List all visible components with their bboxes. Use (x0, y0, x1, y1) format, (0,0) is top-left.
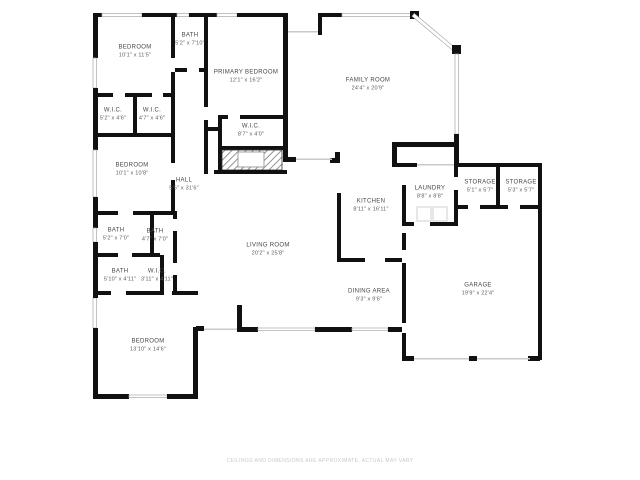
room-dimensions: 9'3" x 9'6" (348, 296, 390, 303)
room-dimensions: 5'1" x 5'7" (464, 187, 495, 194)
room-name: STORAGE (505, 180, 536, 188)
room-label-dining-area: DINING AREA9'3" x 9'6" (348, 289, 390, 304)
room-dimensions: 13'10" x 14'6" (130, 346, 166, 353)
room-name: BATH (175, 33, 205, 41)
room-name: LAUNDRY (415, 186, 446, 194)
room-label-living-room: LIVING ROOM20'2" x 25'8" (246, 243, 289, 258)
room-name: W.I.C. (139, 108, 165, 116)
room-label-bath: BATH5'10" x 4'11" (104, 269, 136, 284)
room-label-bedroom: BEDROOM10'1" x 10'8" (115, 163, 148, 178)
room-name: LIVING ROOM (246, 243, 289, 251)
room-label-bath: BATH5'2" x 7'10" (175, 33, 205, 48)
room-name: BATH (142, 229, 168, 237)
room-label-bath: BATH4'7" x 7'0" (142, 229, 168, 244)
floor-plan-canvas: BEDROOM10'1" x 11'5"BATH5'2" x 7'10"PRIM… (0, 0, 640, 480)
room-label-storage: STORAGE5'1" x 5'7" (464, 180, 495, 195)
room-name: KITCHEN (353, 199, 388, 207)
room-name: BEDROOM (115, 163, 148, 171)
room-dimensions: 5'10" x 4'11" (104, 276, 136, 283)
room-name: PRIMARY BEDROOM (214, 70, 278, 78)
room-label-garage: GARAGE19'9" x 22'4" (462, 283, 495, 298)
room-dimensions: 8'8" x 8'8" (415, 193, 446, 200)
room-dimensions: 24'4" x 20'9" (346, 85, 390, 92)
room-name: DINING AREA (348, 289, 390, 297)
room-dimensions: 19'9" x 22'4" (462, 290, 495, 297)
room-label-w-i-c: W.I.C.4'7" x 4'6" (139, 108, 165, 123)
room-name: FAMILY ROOM (346, 78, 390, 86)
room-dimensions: 8'7" x 4'0" (238, 131, 264, 138)
room-name: GARAGE (462, 283, 495, 291)
room-label-hall: HALL5'5" x 31'6" (169, 178, 199, 193)
room-label-storage: STORAGE5'3" x 5'7" (505, 180, 536, 195)
room-dimensions: 10'1" x 11'5" (118, 52, 151, 59)
room-name: W.I.C. (141, 269, 173, 277)
room-label-w-i-c: W.I.C.5'2" x 4'6" (100, 108, 126, 123)
room-label-kitchen: KITCHEN8'11" x 16'11" (353, 199, 388, 214)
room-name: BEDROOM (130, 339, 166, 347)
room-dimensions: 5'5" x 31'6" (169, 185, 199, 192)
room-dimensions: 4'7" x 4'6" (139, 115, 165, 122)
room-dimensions: 20'2" x 25'8" (246, 250, 289, 257)
room-dimensions: 3'11" x 4'11" (141, 276, 173, 283)
room-label-bedroom: BEDROOM13'10" x 14'6" (130, 339, 166, 354)
floorplan-walls-graphic (0, 0, 640, 480)
room-label-primary-bedroom: PRIMARY BEDROOM12'1" x 16'2" (214, 70, 278, 85)
room-dimensions: 4'7" x 7'0" (142, 236, 168, 243)
room-label-bath: BATH5'2" x 7'0" (103, 228, 129, 243)
room-dimensions: 5'2" x 7'0" (103, 235, 129, 242)
room-dimensions: 5'3" x 5'7" (505, 187, 536, 194)
disclaimer-text: CEILINGS AND DIMENSIONS ARE APPROXIMATE,… (226, 458, 413, 464)
room-label-w-i-c: W.I.C.8'7" x 4'0" (238, 124, 264, 139)
room-dimensions: 8'11" x 16'11" (353, 206, 388, 213)
room-dimensions: 5'2" x 7'10" (175, 40, 205, 47)
room-name: HALL (169, 178, 199, 186)
room-label-laundry: LAUNDRY8'8" x 8'8" (415, 186, 446, 201)
room-dimensions: 10'1" x 10'8" (115, 170, 148, 177)
room-name: BEDROOM (118, 45, 151, 53)
room-name: BATH (104, 269, 136, 277)
room-dimensions: 5'2" x 4'6" (100, 115, 126, 122)
room-name: STORAGE (464, 180, 495, 188)
room-name: BATH (103, 228, 129, 236)
room-name: W.I.C. (100, 108, 126, 116)
room-label-family-room: FAMILY ROOM24'4" x 20'9" (346, 78, 390, 93)
room-name: W.I.C. (238, 124, 264, 132)
room-label-w-i-c: W.I.C.3'11" x 4'11" (141, 269, 173, 284)
room-label-bedroom: BEDROOM10'1" x 11'5" (118, 45, 151, 60)
room-dimensions: 12'1" x 16'2" (214, 77, 278, 84)
